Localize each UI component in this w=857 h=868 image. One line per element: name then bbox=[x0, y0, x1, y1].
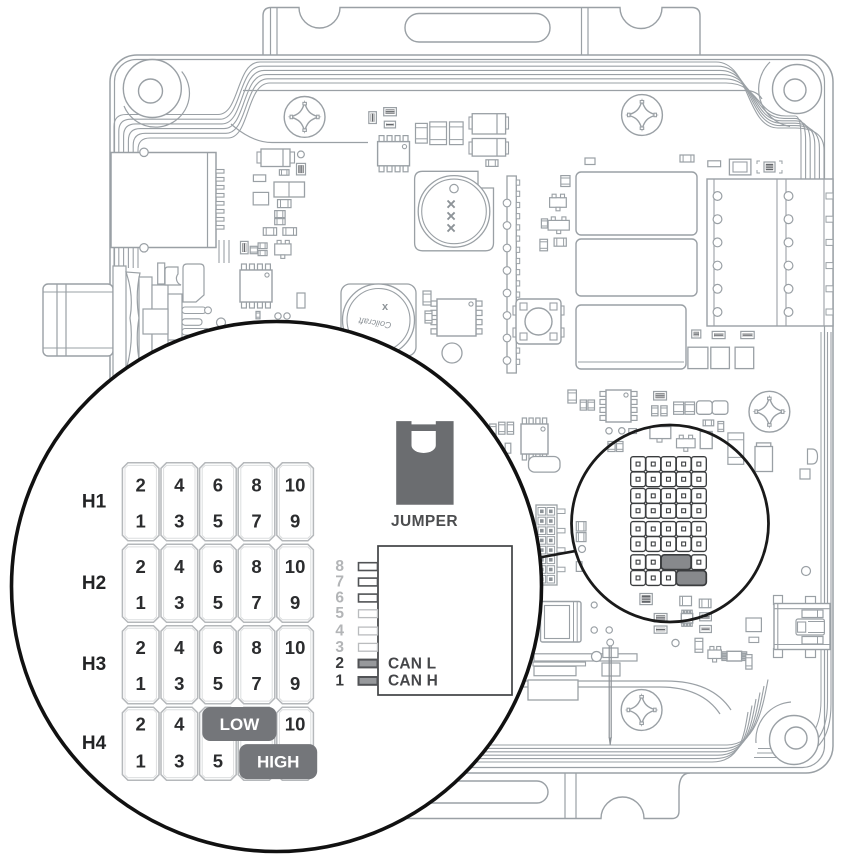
svg-text:10: 10 bbox=[285, 556, 306, 577]
svg-text:1: 1 bbox=[136, 673, 146, 694]
svg-text:8: 8 bbox=[251, 637, 261, 658]
svg-text:6: 6 bbox=[213, 556, 223, 577]
svg-text:9: 9 bbox=[290, 673, 300, 694]
svg-text:3: 3 bbox=[335, 639, 344, 656]
svg-text:1: 1 bbox=[136, 510, 146, 531]
svg-text:4: 4 bbox=[174, 474, 185, 495]
svg-text:6: 6 bbox=[335, 590, 344, 607]
svg-text:3: 3 bbox=[174, 510, 184, 531]
svg-text:5: 5 bbox=[213, 673, 223, 694]
svg-text:5: 5 bbox=[335, 605, 344, 622]
svg-text:3: 3 bbox=[174, 673, 184, 694]
svg-text:8: 8 bbox=[251, 556, 261, 577]
svg-text:2: 2 bbox=[136, 474, 146, 495]
svg-text:4: 4 bbox=[174, 637, 185, 658]
svg-text:H3: H3 bbox=[82, 654, 106, 675]
svg-text:10: 10 bbox=[285, 474, 306, 495]
svg-text:10: 10 bbox=[285, 714, 306, 735]
svg-text:1: 1 bbox=[136, 592, 146, 613]
svg-text:5: 5 bbox=[213, 751, 223, 772]
svg-text:4: 4 bbox=[174, 714, 185, 735]
svg-text:5: 5 bbox=[213, 592, 223, 613]
svg-text:H4: H4 bbox=[82, 733, 107, 754]
svg-text:2: 2 bbox=[335, 655, 344, 672]
svg-text:6: 6 bbox=[213, 474, 223, 495]
svg-text:2: 2 bbox=[136, 637, 146, 658]
svg-text:x: x bbox=[382, 301, 389, 313]
svg-text:2: 2 bbox=[136, 556, 146, 577]
svg-text:8: 8 bbox=[251, 474, 261, 495]
svg-text:JUMPER: JUMPER bbox=[391, 513, 458, 530]
svg-text:3: 3 bbox=[174, 592, 184, 613]
svg-text:7: 7 bbox=[335, 574, 344, 591]
svg-text:7: 7 bbox=[251, 592, 261, 613]
svg-text:9: 9 bbox=[290, 510, 300, 531]
svg-text:CAN H: CAN H bbox=[388, 673, 438, 690]
svg-text:CAN L: CAN L bbox=[388, 655, 436, 672]
svg-text:1: 1 bbox=[335, 672, 344, 689]
svg-text:10: 10 bbox=[285, 637, 306, 658]
svg-text:LOW: LOW bbox=[220, 715, 261, 734]
svg-text:HIGH: HIGH bbox=[257, 753, 300, 772]
svg-text:4: 4 bbox=[335, 623, 344, 640]
svg-text:3: 3 bbox=[174, 751, 184, 772]
svg-text:2: 2 bbox=[136, 714, 146, 735]
svg-text:5: 5 bbox=[213, 510, 223, 531]
svg-text:7: 7 bbox=[251, 510, 261, 531]
svg-text:7: 7 bbox=[251, 673, 261, 694]
svg-text:×××: ××× bbox=[442, 199, 461, 235]
svg-text:9: 9 bbox=[290, 592, 300, 613]
svg-text:6: 6 bbox=[213, 637, 223, 658]
svg-text:H1: H1 bbox=[82, 491, 107, 512]
svg-text:1: 1 bbox=[136, 751, 146, 772]
svg-text:4: 4 bbox=[174, 556, 185, 577]
svg-text:H2: H2 bbox=[82, 573, 106, 594]
